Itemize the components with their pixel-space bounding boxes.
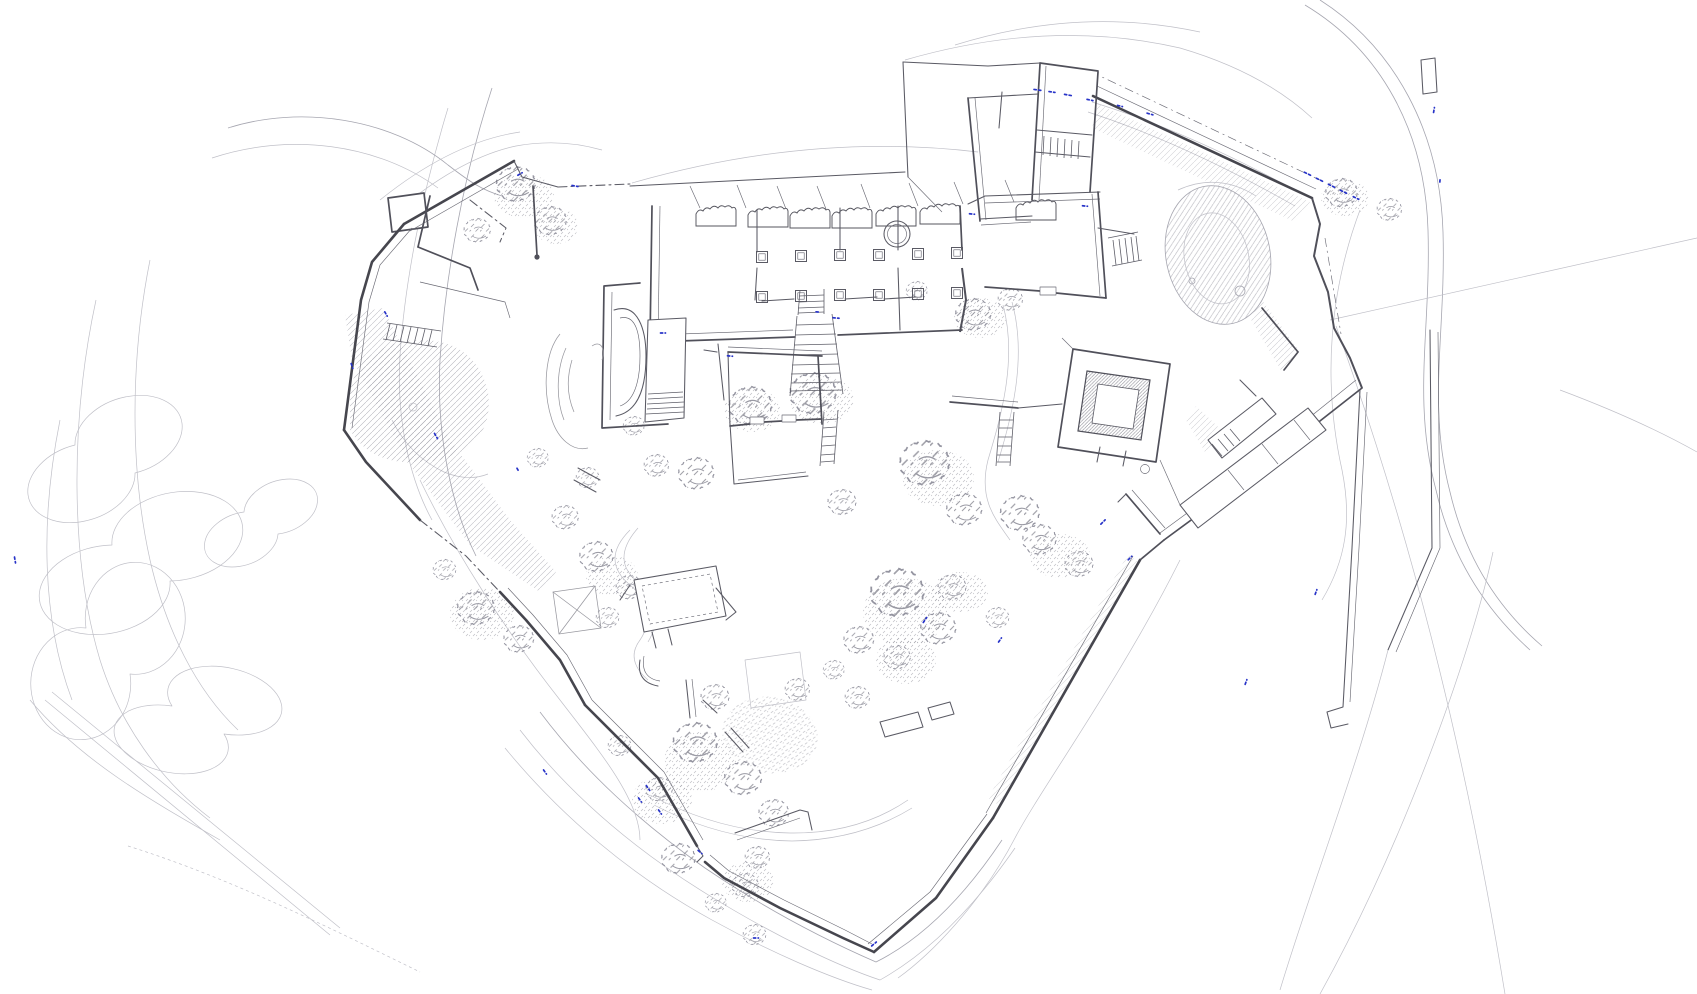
site-plan-canvas (0, 0, 1697, 994)
tree-icon (946, 493, 982, 525)
tree-icon (678, 457, 714, 489)
wall-spike (1421, 58, 1437, 94)
tree-icon (464, 218, 491, 242)
accent-mark (1034, 89, 1042, 90)
tree-icon (661, 843, 695, 874)
accent-mark (1315, 590, 1317, 595)
accent-mark (1147, 113, 1153, 115)
tree-icon (743, 924, 766, 945)
tree-icon (527, 448, 549, 467)
site-plan-page (0, 0, 1697, 994)
tree-icon (758, 799, 789, 826)
accent-mark (1304, 172, 1311, 176)
keep-tower (1058, 338, 1170, 474)
tree-icon (828, 489, 857, 515)
tree-icon (644, 454, 669, 477)
northeast-wing (903, 62, 1098, 225)
tree-icon (724, 761, 762, 795)
tree-icon (986, 607, 1009, 628)
tree-icon (823, 660, 845, 679)
accent-mark (1118, 105, 1123, 106)
accent-mark (1087, 99, 1093, 100)
tree-icon (1000, 495, 1040, 530)
tree-icon (705, 893, 727, 912)
tree-icon (785, 678, 810, 701)
tree-icon (1377, 198, 1402, 221)
tree-icon (552, 505, 579, 529)
accent-mark (572, 185, 578, 186)
accent-mark (1316, 178, 1323, 182)
accent-mark (833, 318, 839, 319)
accent-mark (1245, 680, 1247, 685)
accent-mark (517, 468, 519, 471)
tree-icon (433, 559, 456, 580)
accent-mark (1434, 108, 1435, 113)
accent-mark (544, 770, 547, 774)
accent-mark (999, 638, 1002, 642)
tree-icon (843, 626, 874, 653)
accent-mark (1049, 92, 1055, 93)
tree-icon (845, 686, 870, 709)
east-range-stair (1108, 232, 1142, 266)
tree-icon (701, 684, 730, 710)
tree-icon (503, 625, 534, 652)
great-hall (630, 172, 1056, 396)
accent-mark (872, 942, 877, 946)
accent-mark (1101, 520, 1105, 524)
accent-mark (14, 557, 15, 563)
accent-mark (1065, 94, 1072, 95)
